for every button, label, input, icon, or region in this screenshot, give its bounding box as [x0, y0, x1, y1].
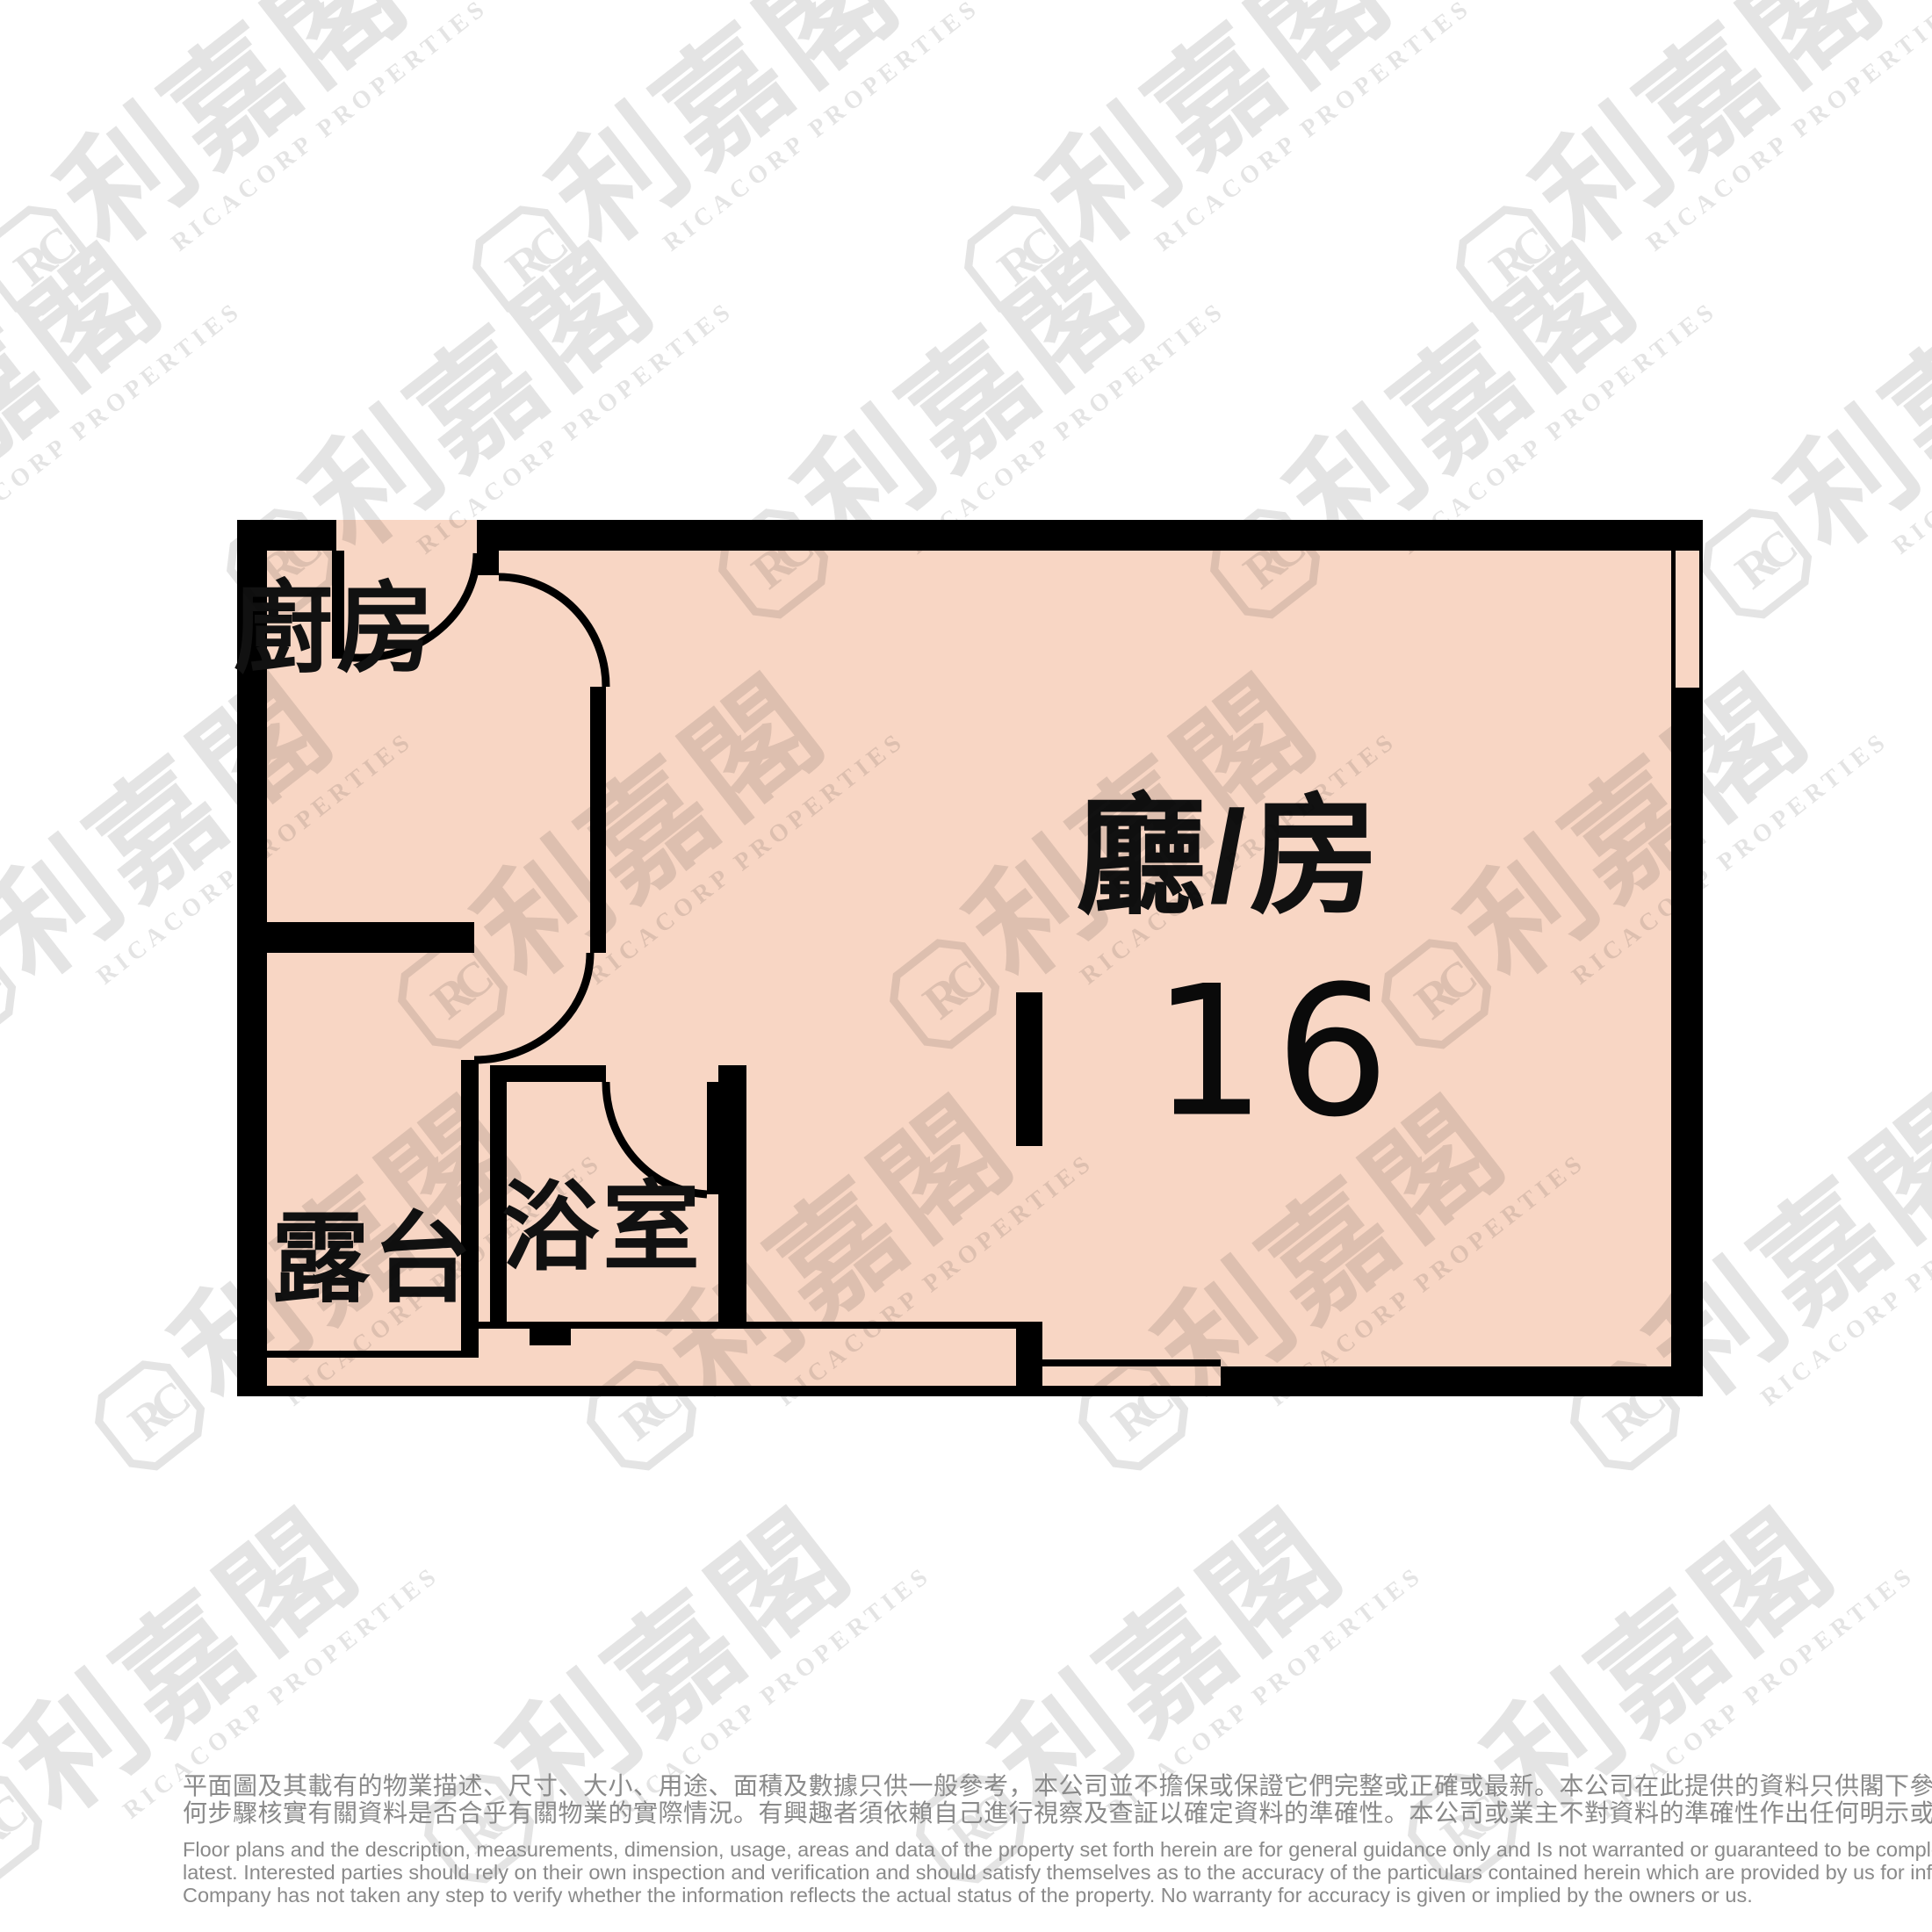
- disclaimer: 平面圖及其載有的物業描述、尺寸、大小、用途、面積及數據只供一般參考，本公司並不擔…: [183, 1772, 1834, 1907]
- disclaimer-en-line1: Floor plans and the description, measure…: [183, 1838, 1834, 1861]
- disclaimer-zh-line2: 何步驟核實有關資料是否合乎有關物業的實際情況。有興趣者須依賴自己進行視察及查証以…: [183, 1799, 1834, 1827]
- watermark-layer: RC 利嘉閣 RICACORP PROPERTIES: [0, 0, 1932, 1932]
- disclaimer-en-line3: Company has not taken any step to verify…: [183, 1884, 1834, 1907]
- floor-plan-page: 廚房 廳/房 露台 浴室 16 RC 利嘉閣 RICACORP PROPERTI…: [0, 0, 1932, 1932]
- disclaimer-zh-line1: 平面圖及其載有的物業描述、尺寸、大小、用途、面積及數據只供一般參考，本公司並不擔…: [183, 1772, 1834, 1799]
- disclaimer-en-line2: latest. Interested parties should rely o…: [183, 1861, 1834, 1884]
